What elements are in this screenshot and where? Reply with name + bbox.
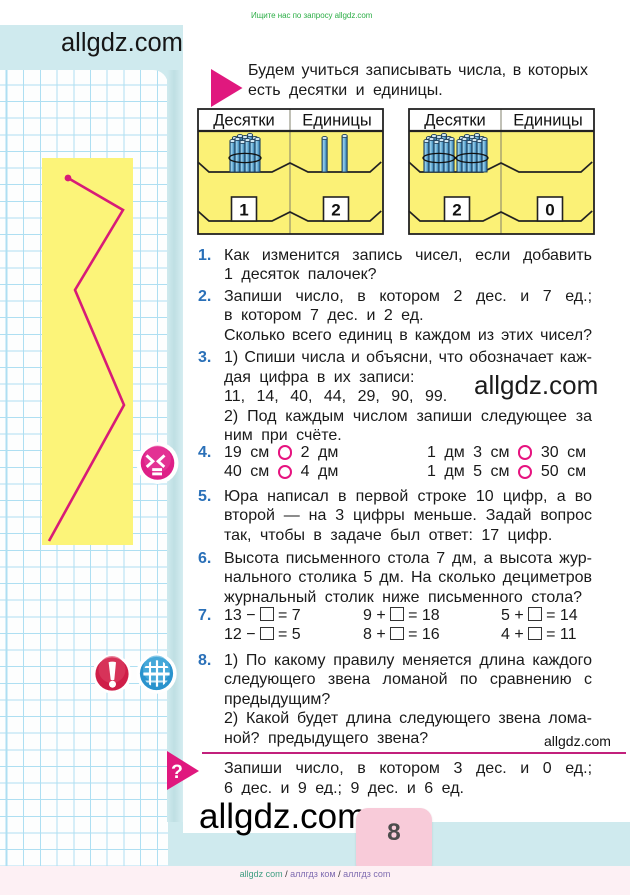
svg-text:0: 0 <box>545 201 554 220</box>
svg-text:Десятки: Десятки <box>424 112 486 130</box>
svg-text:2: 2 <box>331 201 340 220</box>
svg-text:2: 2 <box>452 201 461 220</box>
svg-text:Десятки: Десятки <box>213 112 275 130</box>
svg-text:?: ? <box>171 761 183 783</box>
svg-text:1: 1 <box>239 201 248 220</box>
svg-text:Единицы: Единицы <box>302 112 372 130</box>
svg-text:Единицы: Единицы <box>513 112 583 130</box>
